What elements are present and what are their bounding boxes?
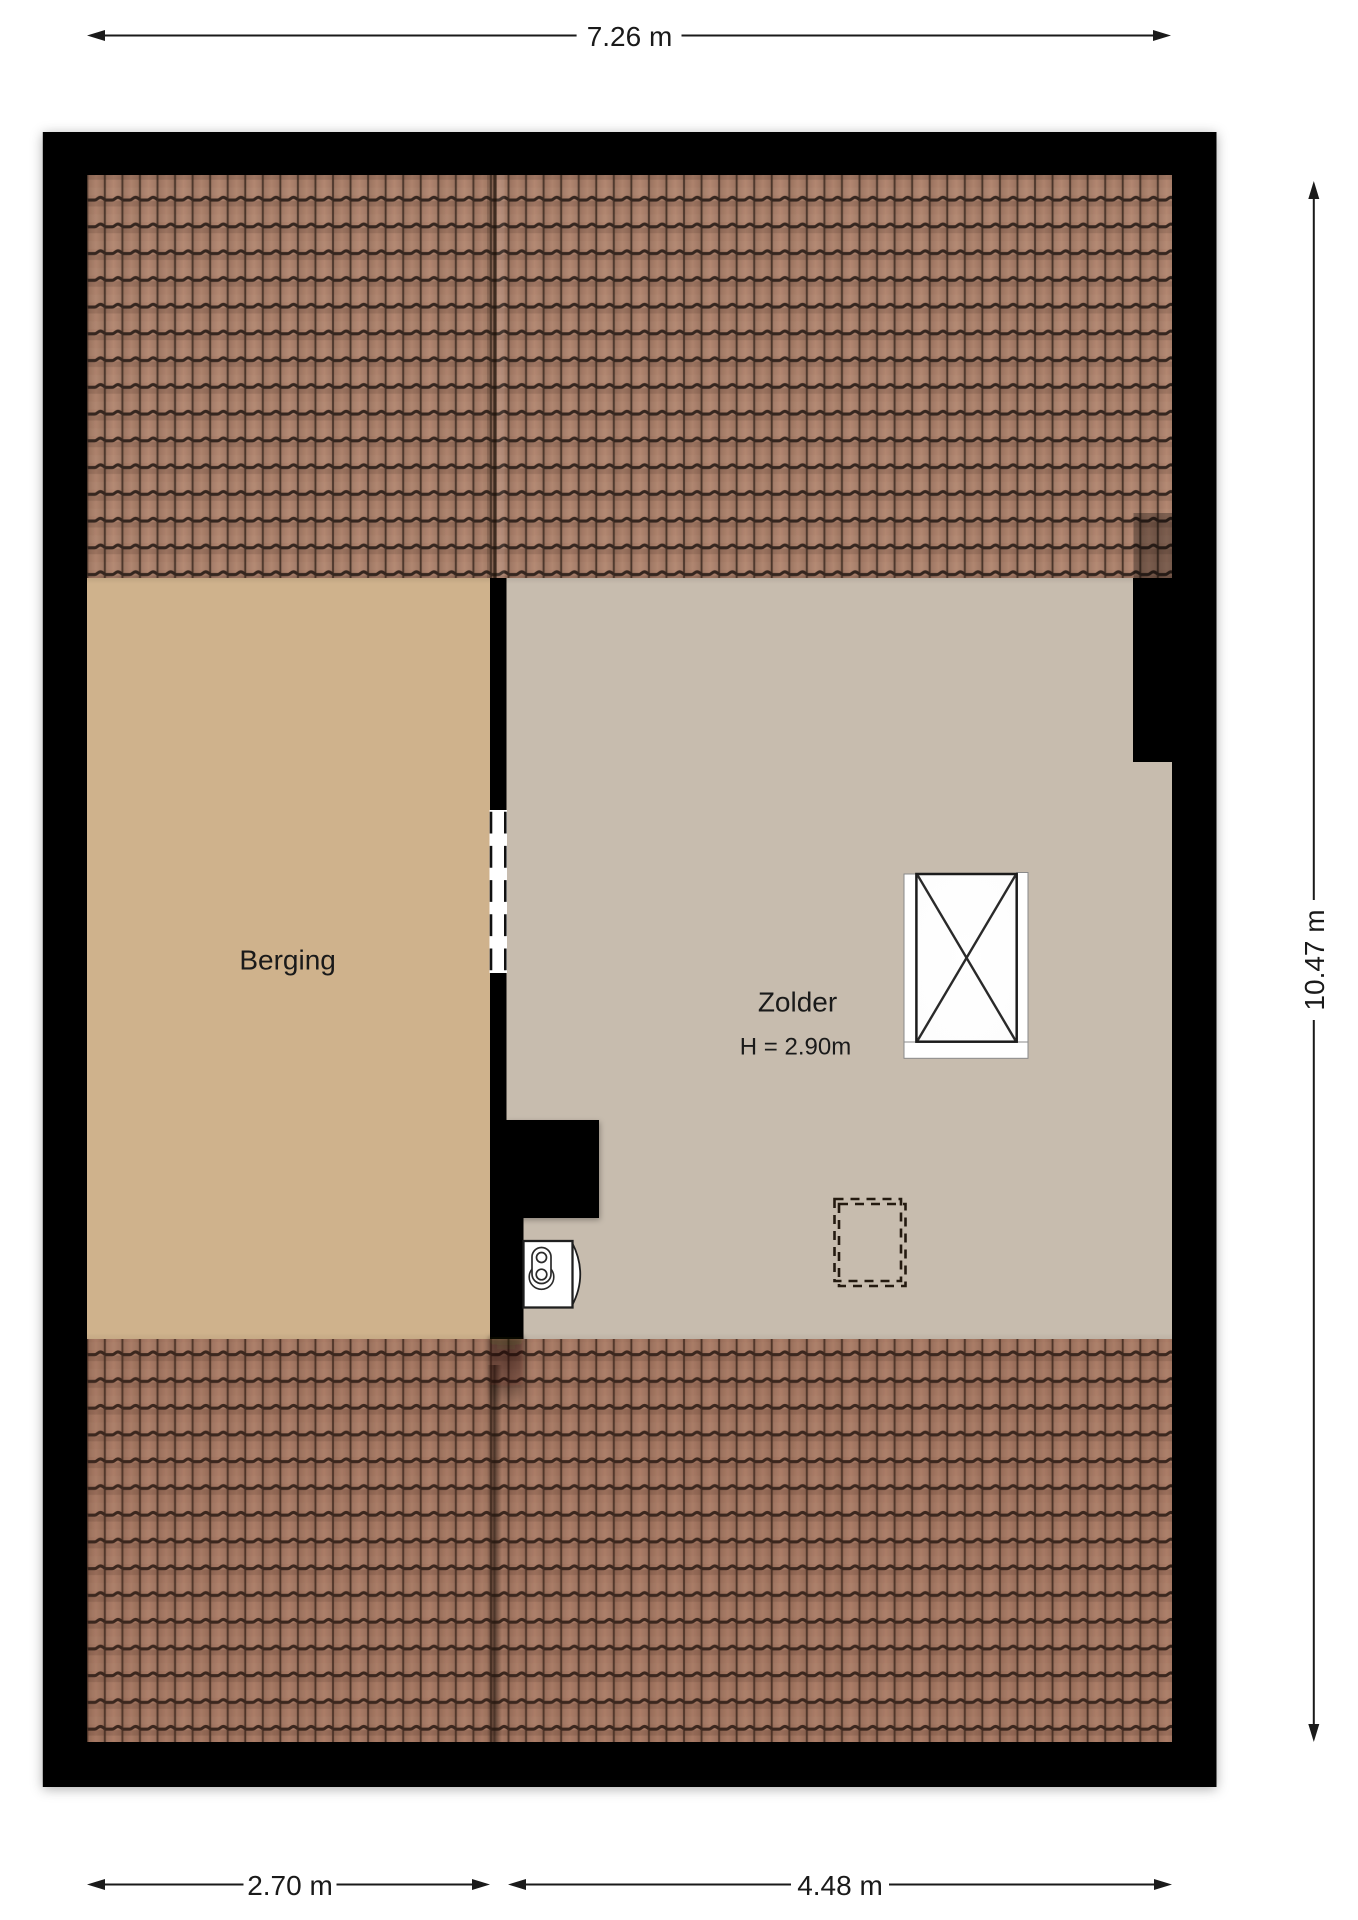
svg-text:H = 2.90m: H = 2.90m: [740, 1034, 851, 1061]
svg-text:10.47 m: 10.47 m: [1299, 909, 1330, 1010]
svg-text:7.26 m: 7.26 m: [587, 21, 673, 52]
svg-text:4.48 m: 4.48 m: [797, 1870, 883, 1901]
svg-text:Zolder: Zolder: [758, 987, 837, 1018]
svg-text:Berging: Berging: [239, 945, 336, 976]
svg-text:2.70 m: 2.70 m: [247, 1870, 333, 1901]
